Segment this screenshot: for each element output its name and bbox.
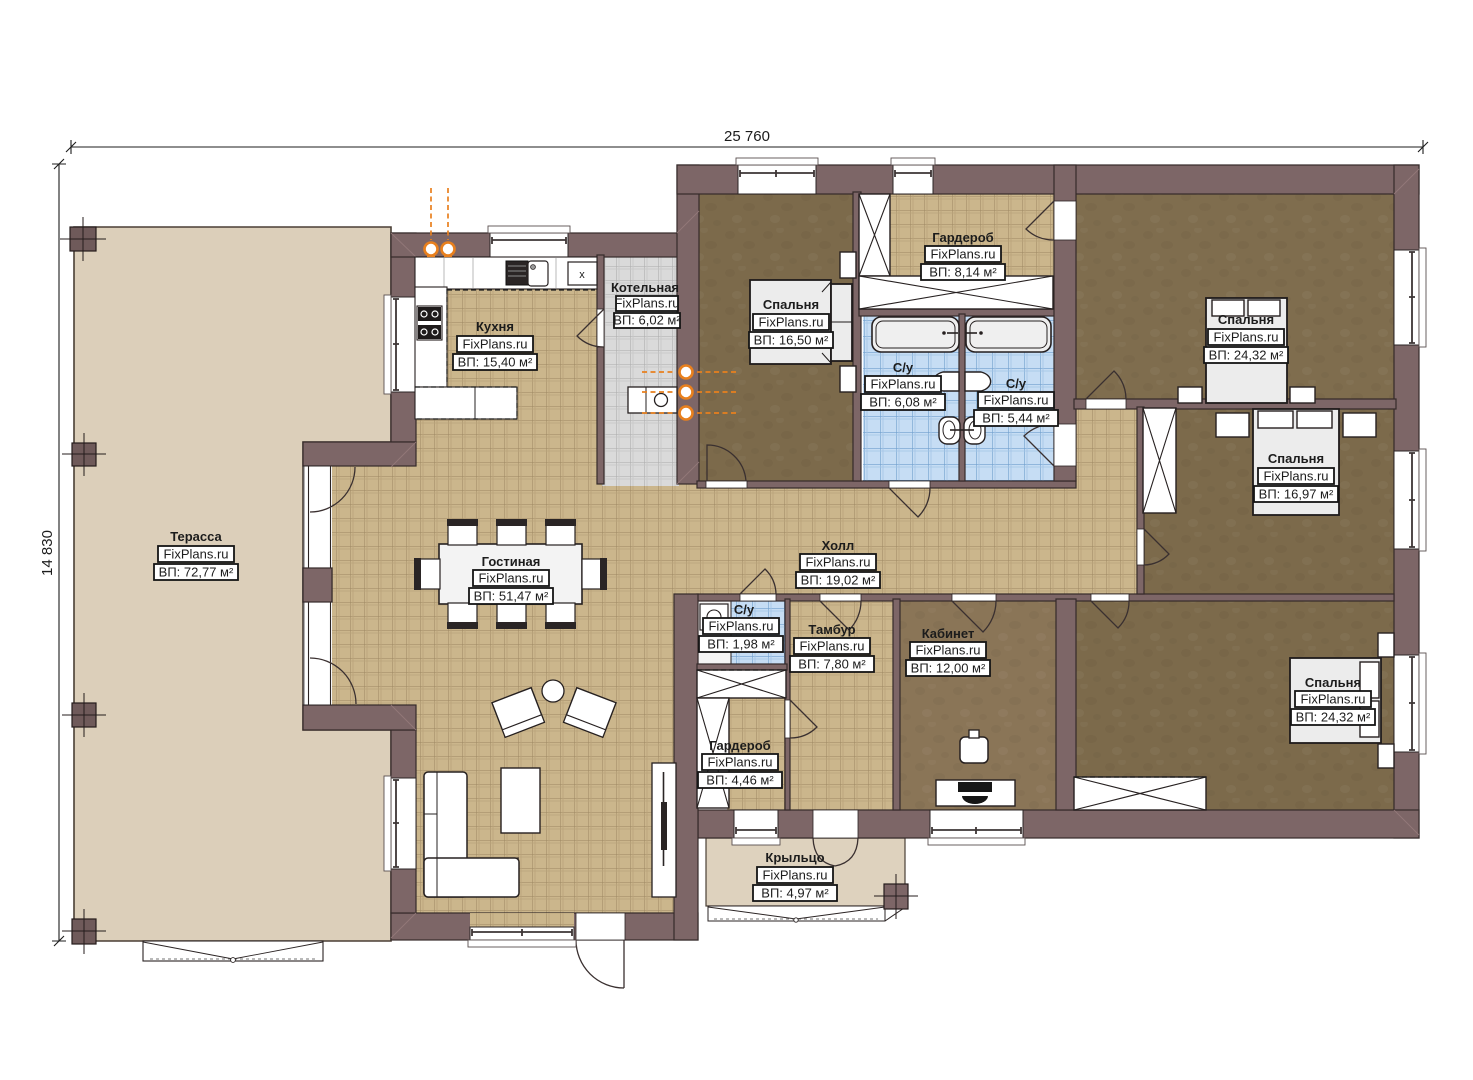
svg-text:FixPlans.ru: FixPlans.ru: [1213, 330, 1278, 345]
svg-text:FixPlans.ru: FixPlans.ru: [163, 547, 228, 562]
svg-text:FixPlans.ru: FixPlans.ru: [758, 315, 823, 330]
svg-text:ВП: 15,40 м²: ВП: 15,40 м²: [458, 355, 533, 370]
svg-text:ВП: 7,80 м²: ВП: 7,80 м²: [798, 657, 866, 672]
svg-text:FixPlans.ru: FixPlans.ru: [707, 755, 772, 770]
svg-text:FixPlans.ru: FixPlans.ru: [870, 377, 935, 392]
svg-text:Крыльцо: Крыльцо: [765, 850, 824, 865]
svg-text:FixPlans.ru: FixPlans.ru: [1300, 692, 1365, 707]
svg-text:ВП: 24,32 м²: ВП: 24,32 м²: [1296, 710, 1371, 725]
svg-text:ВП: 6,08 м²: ВП: 6,08 м²: [869, 395, 937, 410]
svg-text:FixPlans.ru: FixPlans.ru: [462, 337, 527, 352]
svg-text:Кухня: Кухня: [476, 319, 514, 334]
svg-text:Гардероб: Гардероб: [932, 230, 993, 245]
svg-text:Спальня: Спальня: [1268, 451, 1324, 466]
svg-text:FixPlans.ru: FixPlans.ru: [799, 639, 864, 654]
svg-text:14 830: 14 830: [39, 530, 56, 576]
svg-text:ВП: 16,50 м²: ВП: 16,50 м²: [754, 333, 829, 348]
svg-text:Кабинет: Кабинет: [922, 626, 975, 641]
svg-text:x: x: [579, 269, 585, 281]
svg-text:FixPlans.ru: FixPlans.ru: [915, 643, 980, 658]
svg-text:Спальня: Спальня: [1305, 675, 1361, 690]
svg-text:FixPlans.ru: FixPlans.ru: [1263, 469, 1328, 484]
svg-text:С/у: С/у: [734, 602, 755, 617]
svg-text:FixPlans.ru: FixPlans.ru: [762, 868, 827, 883]
svg-text:FixPlans.ru: FixPlans.ru: [983, 393, 1048, 408]
svg-text:С/у: С/у: [1006, 376, 1027, 391]
svg-text:ВП: 24,32 м²: ВП: 24,32 м²: [1209, 348, 1284, 363]
svg-text:FixPlans.ru: FixPlans.ru: [614, 296, 679, 311]
svg-text:25 760: 25 760: [724, 128, 770, 145]
svg-text:ВП: 51,47 м²: ВП: 51,47 м²: [474, 589, 549, 604]
svg-text:ВП: 8,14 м²: ВП: 8,14 м²: [929, 265, 997, 280]
svg-text:Тамбур: Тамбур: [808, 622, 855, 637]
svg-text:ВП: 72,77 м²: ВП: 72,77 м²: [159, 565, 234, 580]
svg-text:ВП: 16,97 м²: ВП: 16,97 м²: [1259, 487, 1334, 502]
svg-text:FixPlans.ru: FixPlans.ru: [805, 555, 870, 570]
svg-text:FixPlans.ru: FixPlans.ru: [708, 619, 773, 634]
svg-text:ВП: 6,02 м²: ВП: 6,02 м²: [613, 313, 681, 328]
svg-text:ВП: 19,02 м²: ВП: 19,02 м²: [801, 573, 876, 588]
svg-text:ВП: 12,00 м²: ВП: 12,00 м²: [911, 661, 986, 676]
svg-text:Котельная: Котельная: [611, 280, 679, 295]
svg-text:Гостиная: Гостиная: [482, 554, 541, 569]
svg-text:Спальня: Спальня: [1218, 312, 1274, 327]
svg-text:ВП: 4,97 м²: ВП: 4,97 м²: [761, 886, 829, 901]
svg-text:Холл: Холл: [822, 538, 855, 553]
svg-text:С/у: С/у: [893, 360, 914, 375]
svg-text:Терасса: Терасса: [170, 529, 222, 544]
svg-text:Гардероб: Гардероб: [709, 738, 770, 753]
svg-text:ВП: 5,44 м²: ВП: 5,44 м²: [982, 411, 1050, 426]
svg-text:Спальня: Спальня: [763, 297, 819, 312]
svg-text:FixPlans.ru: FixPlans.ru: [478, 571, 543, 586]
svg-text:ВП: 1,98 м²: ВП: 1,98 м²: [707, 637, 775, 652]
svg-text:FixPlans.ru: FixPlans.ru: [930, 247, 995, 262]
svg-text:ВП: 4,46 м²: ВП: 4,46 м²: [706, 773, 774, 788]
